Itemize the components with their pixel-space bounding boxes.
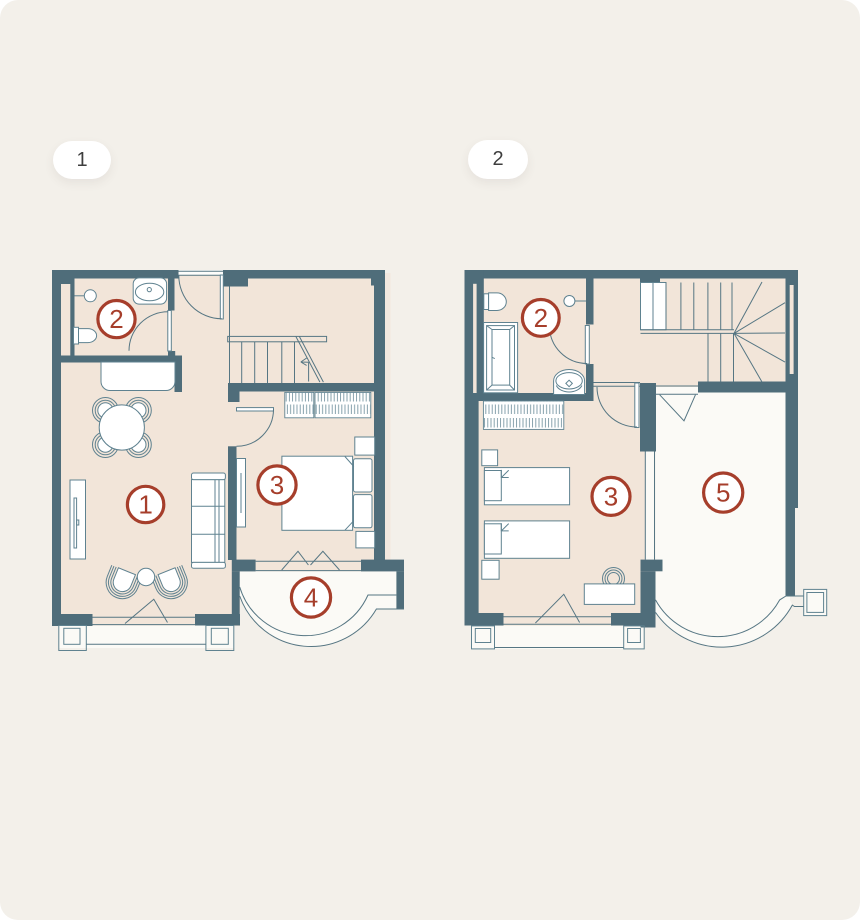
svg-text:3: 3 xyxy=(604,481,618,511)
svg-text:1: 1 xyxy=(138,490,152,520)
svg-text:2: 2 xyxy=(534,303,548,333)
svg-text:5: 5 xyxy=(716,478,730,508)
svg-text:4: 4 xyxy=(304,583,318,613)
svg-text:3: 3 xyxy=(270,470,284,500)
svg-text:2: 2 xyxy=(109,304,123,334)
